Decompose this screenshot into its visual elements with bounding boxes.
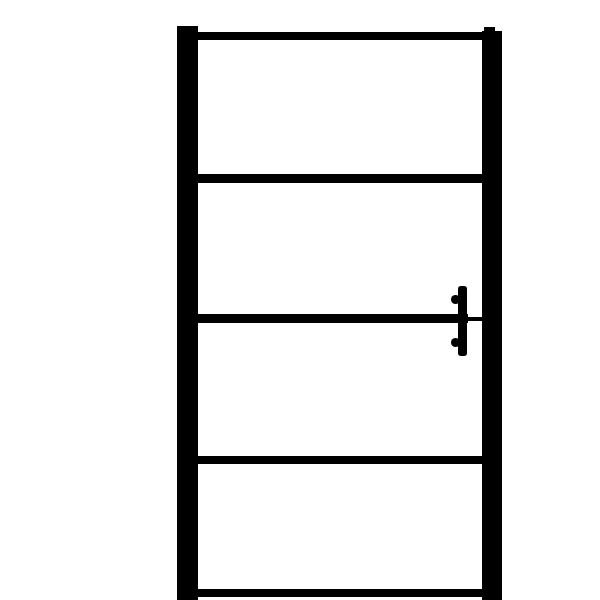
right-post-tab <box>484 27 495 33</box>
crossbar-middle-thin <box>467 317 483 321</box>
top-rail <box>197 32 483 40</box>
shower-door-product-image <box>40 16 600 600</box>
handle-mount-bottom <box>451 338 460 347</box>
bottom-rail <box>197 589 483 597</box>
glass-panel-2 <box>198 183 482 314</box>
left-post <box>177 26 198 600</box>
crossbar-upper <box>197 174 483 183</box>
glass-panel-3 <box>198 323 482 456</box>
glass-panel-4 <box>198 464 482 589</box>
crossbar-lower <box>197 456 483 464</box>
right-post <box>482 31 502 600</box>
handle-mount-top <box>451 295 460 304</box>
crossbar-middle <box>197 314 468 323</box>
glass-panel-1 <box>198 40 482 174</box>
